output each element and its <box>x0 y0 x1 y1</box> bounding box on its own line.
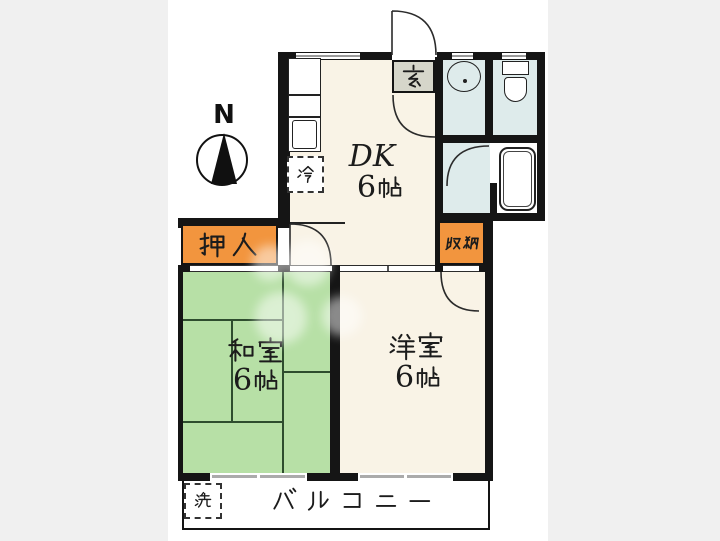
label-youshitsu-size: 6 <box>388 363 448 393</box>
wall <box>435 265 443 272</box>
doorway-shuunou <box>443 265 479 272</box>
tatami-line <box>283 371 330 373</box>
sliding-door-dk-youshitsu <box>340 265 435 272</box>
label-washitsu-name <box>226 336 286 366</box>
toilet-tank <box>502 61 529 75</box>
wall <box>453 473 493 481</box>
room-changing-area <box>443 143 490 213</box>
wall <box>178 473 210 481</box>
wall <box>178 265 190 272</box>
wall <box>278 265 290 272</box>
label-refrigerator <box>294 164 316 186</box>
label-youshitsu-name <box>386 331 446 361</box>
label-washer <box>192 490 213 511</box>
tatami-line <box>183 421 283 423</box>
wall <box>178 272 183 481</box>
wall <box>443 135 545 143</box>
window-washbasin <box>452 52 473 60</box>
compass-needle <box>196 130 256 190</box>
washbasin-drain <box>463 79 467 83</box>
sliding-door-oshiire <box>190 265 278 272</box>
wall <box>330 272 340 473</box>
compass-north-label: N <box>206 100 242 130</box>
wall <box>435 57 443 221</box>
label-balcony <box>268 486 434 514</box>
balcony-door-youshitsu <box>358 473 453 481</box>
label-washitsu-size: 6 <box>226 366 286 396</box>
washbasin-sink <box>447 61 481 92</box>
tatami-line <box>183 319 283 321</box>
toilet-bowl <box>504 77 527 102</box>
wall <box>307 473 358 481</box>
label-oshiire <box>196 230 260 260</box>
wall <box>485 221 493 481</box>
kitchen-counter <box>288 58 321 152</box>
wall <box>479 265 493 272</box>
lintel-line <box>290 222 345 224</box>
wall <box>437 213 545 221</box>
wall <box>485 52 493 143</box>
balcony-door-washitsu <box>210 473 307 481</box>
doorway-dk-washitsu <box>290 265 332 272</box>
label-dk-name: DK <box>340 141 404 173</box>
label-shuunou <box>442 234 483 252</box>
bathtub <box>499 147 536 211</box>
label-dk-size: 6 <box>346 172 414 204</box>
floor-plan: N DK 6 6 6 <box>0 0 720 541</box>
window-toilet <box>502 52 526 60</box>
label-genkan <box>399 63 427 91</box>
